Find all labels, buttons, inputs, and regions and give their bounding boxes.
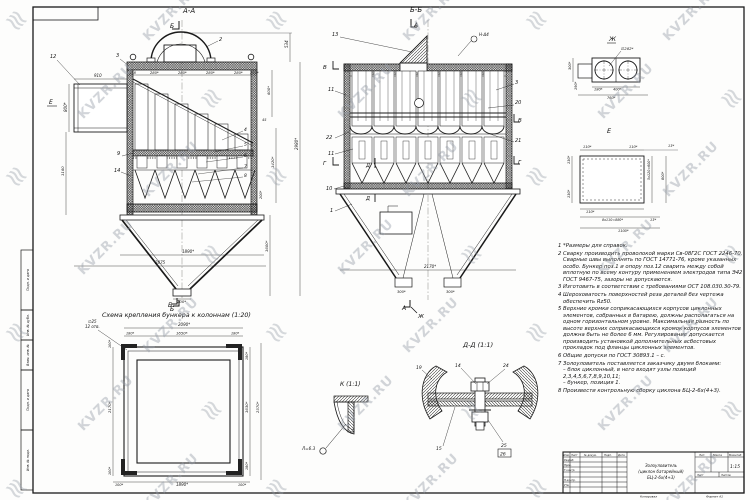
- section-mark-a-bottom: А: [401, 305, 406, 312]
- dim-b110: 110*: [586, 210, 595, 214]
- callout-21: 21: [515, 138, 521, 144]
- tb-footer-format: Формат А1: [706, 495, 723, 499]
- dim-t110b: 110*: [629, 145, 638, 149]
- callout-14: 14: [114, 168, 120, 174]
- tb-row-nkontr: Н.контр.: [564, 478, 576, 482]
- dim-b13: 13*: [650, 218, 656, 222]
- note-3: 3 Изготовить в соответствии с требования…: [558, 284, 744, 291]
- dim-l100a: 100*: [108, 340, 112, 348]
- view-aa-title: А-А: [182, 7, 195, 15]
- detail-k-weld: Л=6.3: [301, 446, 316, 451]
- callout-1: 1: [330, 208, 333, 214]
- tb-col-list: Лист: [570, 453, 578, 457]
- dim-t110a: 110*: [583, 145, 592, 149]
- view-aa: А-А Б 2 158 280* 280* 280* 280* 280* 910…: [47, 7, 300, 313]
- callout-7: 7: [244, 164, 247, 170]
- dim-b880: 8х110=880*: [602, 218, 623, 222]
- detail-e: Е 110* 110* 13* 130* 130* 5х120=600* 800…: [567, 127, 678, 233]
- callout-26: 26: [500, 452, 506, 458]
- tb-masshtab: Масштаб: [729, 453, 742, 457]
- dim-r800: 800*: [661, 171, 665, 180]
- callout-12: 12: [50, 54, 56, 60]
- dim-400: 400*: [613, 88, 622, 92]
- dim: 280*: [250, 71, 259, 75]
- callout-24: 24: [503, 363, 509, 369]
- dim-534: 534: [284, 40, 289, 48]
- note-7: 7 Золоуловитель поставляется заказчику д…: [558, 361, 744, 387]
- tb-row-tkontr: Т.контр.: [564, 468, 575, 472]
- callout-22: 22: [326, 135, 332, 141]
- mark-g-right: Г: [518, 160, 522, 166]
- dim-2875: 2875: [155, 260, 166, 265]
- detail-e-title: Е: [607, 127, 612, 135]
- tb-footer-copy: Копировал: [640, 495, 657, 499]
- mark-v-left: В: [323, 65, 327, 71]
- strip-cell-2: Взам. инв. №: [26, 344, 30, 366]
- callout-11b: 11: [328, 151, 334, 157]
- weld-callout: Н-Δ4: [479, 32, 489, 37]
- tb-scale-value: 1:15: [730, 464, 740, 470]
- callout-9: 9: [117, 151, 120, 157]
- detail-k: К (1:1) Л=6.3: [301, 381, 368, 454]
- mark-g-left: Г: [323, 161, 327, 167]
- dim-300: 300*: [568, 61, 572, 70]
- dim-r600: 5х120=600*: [647, 159, 651, 180]
- dim-r2370: 2370*: [255, 401, 260, 413]
- dim: 280*: [150, 71, 159, 75]
- note-6: 6 Общие допуски по ГОСТ 30893.1 – с.: [558, 353, 744, 360]
- strip-cell-4: Инв. № подл.: [26, 449, 30, 471]
- dim-t180a: 180*: [126, 332, 134, 336]
- dim: 280*: [178, 71, 187, 75]
- strip-cell-3: Подп. и дата: [26, 389, 30, 411]
- dim-1420: 1420*: [270, 156, 275, 168]
- dim-760: 760*: [607, 96, 616, 100]
- dim-b1890: 1890*: [176, 482, 188, 487]
- strip-cell-0: Подп. и дата: [26, 269, 30, 291]
- note-5: 5 Верхние кромки соприкасающихся корпусо…: [558, 306, 744, 352]
- dim-t1650: 1650*: [176, 331, 188, 336]
- dim-b1100: 1100*: [618, 229, 629, 233]
- callout-8: 8: [244, 173, 247, 179]
- callout-19: 19: [416, 365, 422, 371]
- tb-list: Лист: [696, 473, 704, 477]
- dim-180: 180*: [594, 88, 603, 92]
- dim-dia282: ∅282*: [621, 46, 634, 51]
- view-bb-title: Б-Б: [410, 6, 422, 14]
- detail-zh-title: Ж: [608, 35, 617, 43]
- callout-11a: 11: [328, 87, 334, 93]
- dim-2090: 2090*: [178, 322, 190, 327]
- dim-inlet-width: 910: [94, 73, 102, 78]
- dim-inlet-height: 800*: [63, 102, 68, 112]
- dim-1890: 1890*: [182, 249, 194, 254]
- mark-v-right: В: [518, 118, 522, 124]
- callout-3b: 3: [515, 80, 518, 86]
- tb-name-1: Золоуловитель: [645, 463, 678, 468]
- dim-45: 45: [262, 118, 267, 122]
- tb-col-doc: № докум.: [583, 454, 597, 457]
- tb-col-izm: Изм.: [564, 453, 570, 457]
- note-8: 8 Произвести контрольную сборку циклона …: [558, 388, 744, 395]
- dim: 280*: [206, 71, 215, 75]
- tb-col-data: Дата: [617, 453, 625, 457]
- view-mark-e: Е: [49, 99, 53, 106]
- callout-6: 6: [244, 153, 247, 159]
- dim: 280*: [234, 71, 243, 75]
- scheme-mark-b: Б: [168, 302, 172, 309]
- callout-13: 13: [332, 32, 338, 38]
- section-mark-a-top: А: [413, 22, 418, 29]
- scheme-holes-count: 12 отв.: [85, 324, 100, 329]
- dim: 158: [129, 71, 137, 75]
- mark-d-top: Д: [365, 163, 370, 169]
- callout-4: 4: [244, 127, 247, 133]
- dim-600: 600*: [266, 86, 271, 95]
- tb-name-3: БЦ-2-6х(4+3): [647, 475, 675, 480]
- dim-l100b: 100*: [108, 467, 112, 475]
- dim-2980: 2980*: [294, 138, 299, 150]
- dim-2170: 2170*: [424, 264, 436, 269]
- drawing-sheet: ≋KVZR.RU≋KVZR.RU≋KVZR.RUKVZR.RU≋KVZR.RU≋…: [0, 0, 750, 500]
- callout-2: 2: [219, 37, 222, 43]
- dim-t180b: 180*: [231, 332, 239, 336]
- technical-notes: 1 *Размеры для справок. 2 Сварку произво…: [558, 243, 744, 395]
- dim-190: 190*: [574, 81, 578, 90]
- callout-20: 20: [515, 100, 521, 106]
- callout-14b: 14: [455, 363, 461, 369]
- detail-zh: Ж ∅282* 300* 190* 180* 400* 760*: [568, 35, 648, 100]
- callout-3: 3: [116, 53, 119, 59]
- dim-r180a: 180*: [245, 352, 249, 360]
- tb-name-2: (циклон батарейный): [638, 469, 684, 474]
- dim-1160: 1160: [60, 166, 65, 176]
- note-4: 4 Шероховатость поверхностей реза детале…: [558, 292, 744, 305]
- dim-outlet: 200*: [177, 299, 186, 304]
- dim-outlet-right: 300*: [446, 290, 455, 294]
- tb-row-prov: Пров.: [564, 463, 572, 467]
- tb-mass: Масса: [713, 453, 722, 457]
- dim-l130b: 130*: [567, 189, 571, 198]
- dim-l130a: 130*: [567, 155, 571, 164]
- tb-row-utv: Утв.: [564, 483, 570, 487]
- scheme-title: Схема крепления бункера к колоннам (1:20…: [102, 311, 251, 319]
- detail-dd: Д-Д (1:1) 19 14 24 15 25 26: [416, 341, 538, 458]
- dim-t13: 13*: [668, 144, 674, 148]
- dim-200: 200*: [259, 190, 263, 199]
- callout-15: 15: [436, 446, 442, 452]
- scheme: Б Схема крепления бункера к колоннам (1:…: [85, 298, 261, 487]
- tb-lit: Лит.: [698, 453, 706, 457]
- dim-l2170: 2170*: [107, 401, 112, 413]
- callout-5: 5: [244, 142, 247, 148]
- title-block: Изм. Лист № докум. Подп. Дата Разраб. Пр…: [563, 452, 744, 499]
- callout-10: 10: [326, 186, 332, 192]
- callout-25: 25: [501, 443, 507, 449]
- dim-outlet-left: 300*: [397, 290, 406, 294]
- view-mark-j: Ж: [417, 314, 425, 320]
- view-bb: Б-Б А 13 Н-Δ4 158 280* 280* 280* 280* 28…: [323, 6, 522, 320]
- strip-cell-1: Инв. № дубл.: [26, 314, 30, 336]
- dim-r180b: 180*: [245, 462, 249, 470]
- dim-1600: 1600*: [264, 240, 269, 252]
- detail-k-title: К (1:1): [340, 381, 361, 388]
- dim-r1630: 1630*: [244, 401, 249, 413]
- dim-b100b: 100*: [238, 483, 246, 487]
- tb-row-razrab: Разраб.: [564, 458, 574, 462]
- note-2: 2 Сварку производить проволокой марки Св…: [558, 251, 744, 284]
- note-1: 1 *Размеры для справок.: [558, 243, 744, 250]
- mark-d-bottom: Д: [365, 196, 370, 202]
- tb-col-podp: Подп.: [604, 453, 612, 457]
- dim-b100a: 100*: [115, 483, 123, 487]
- tb-listov: Листов: [720, 473, 731, 477]
- detail-dd-title: Д-Д (1:1): [462, 341, 493, 349]
